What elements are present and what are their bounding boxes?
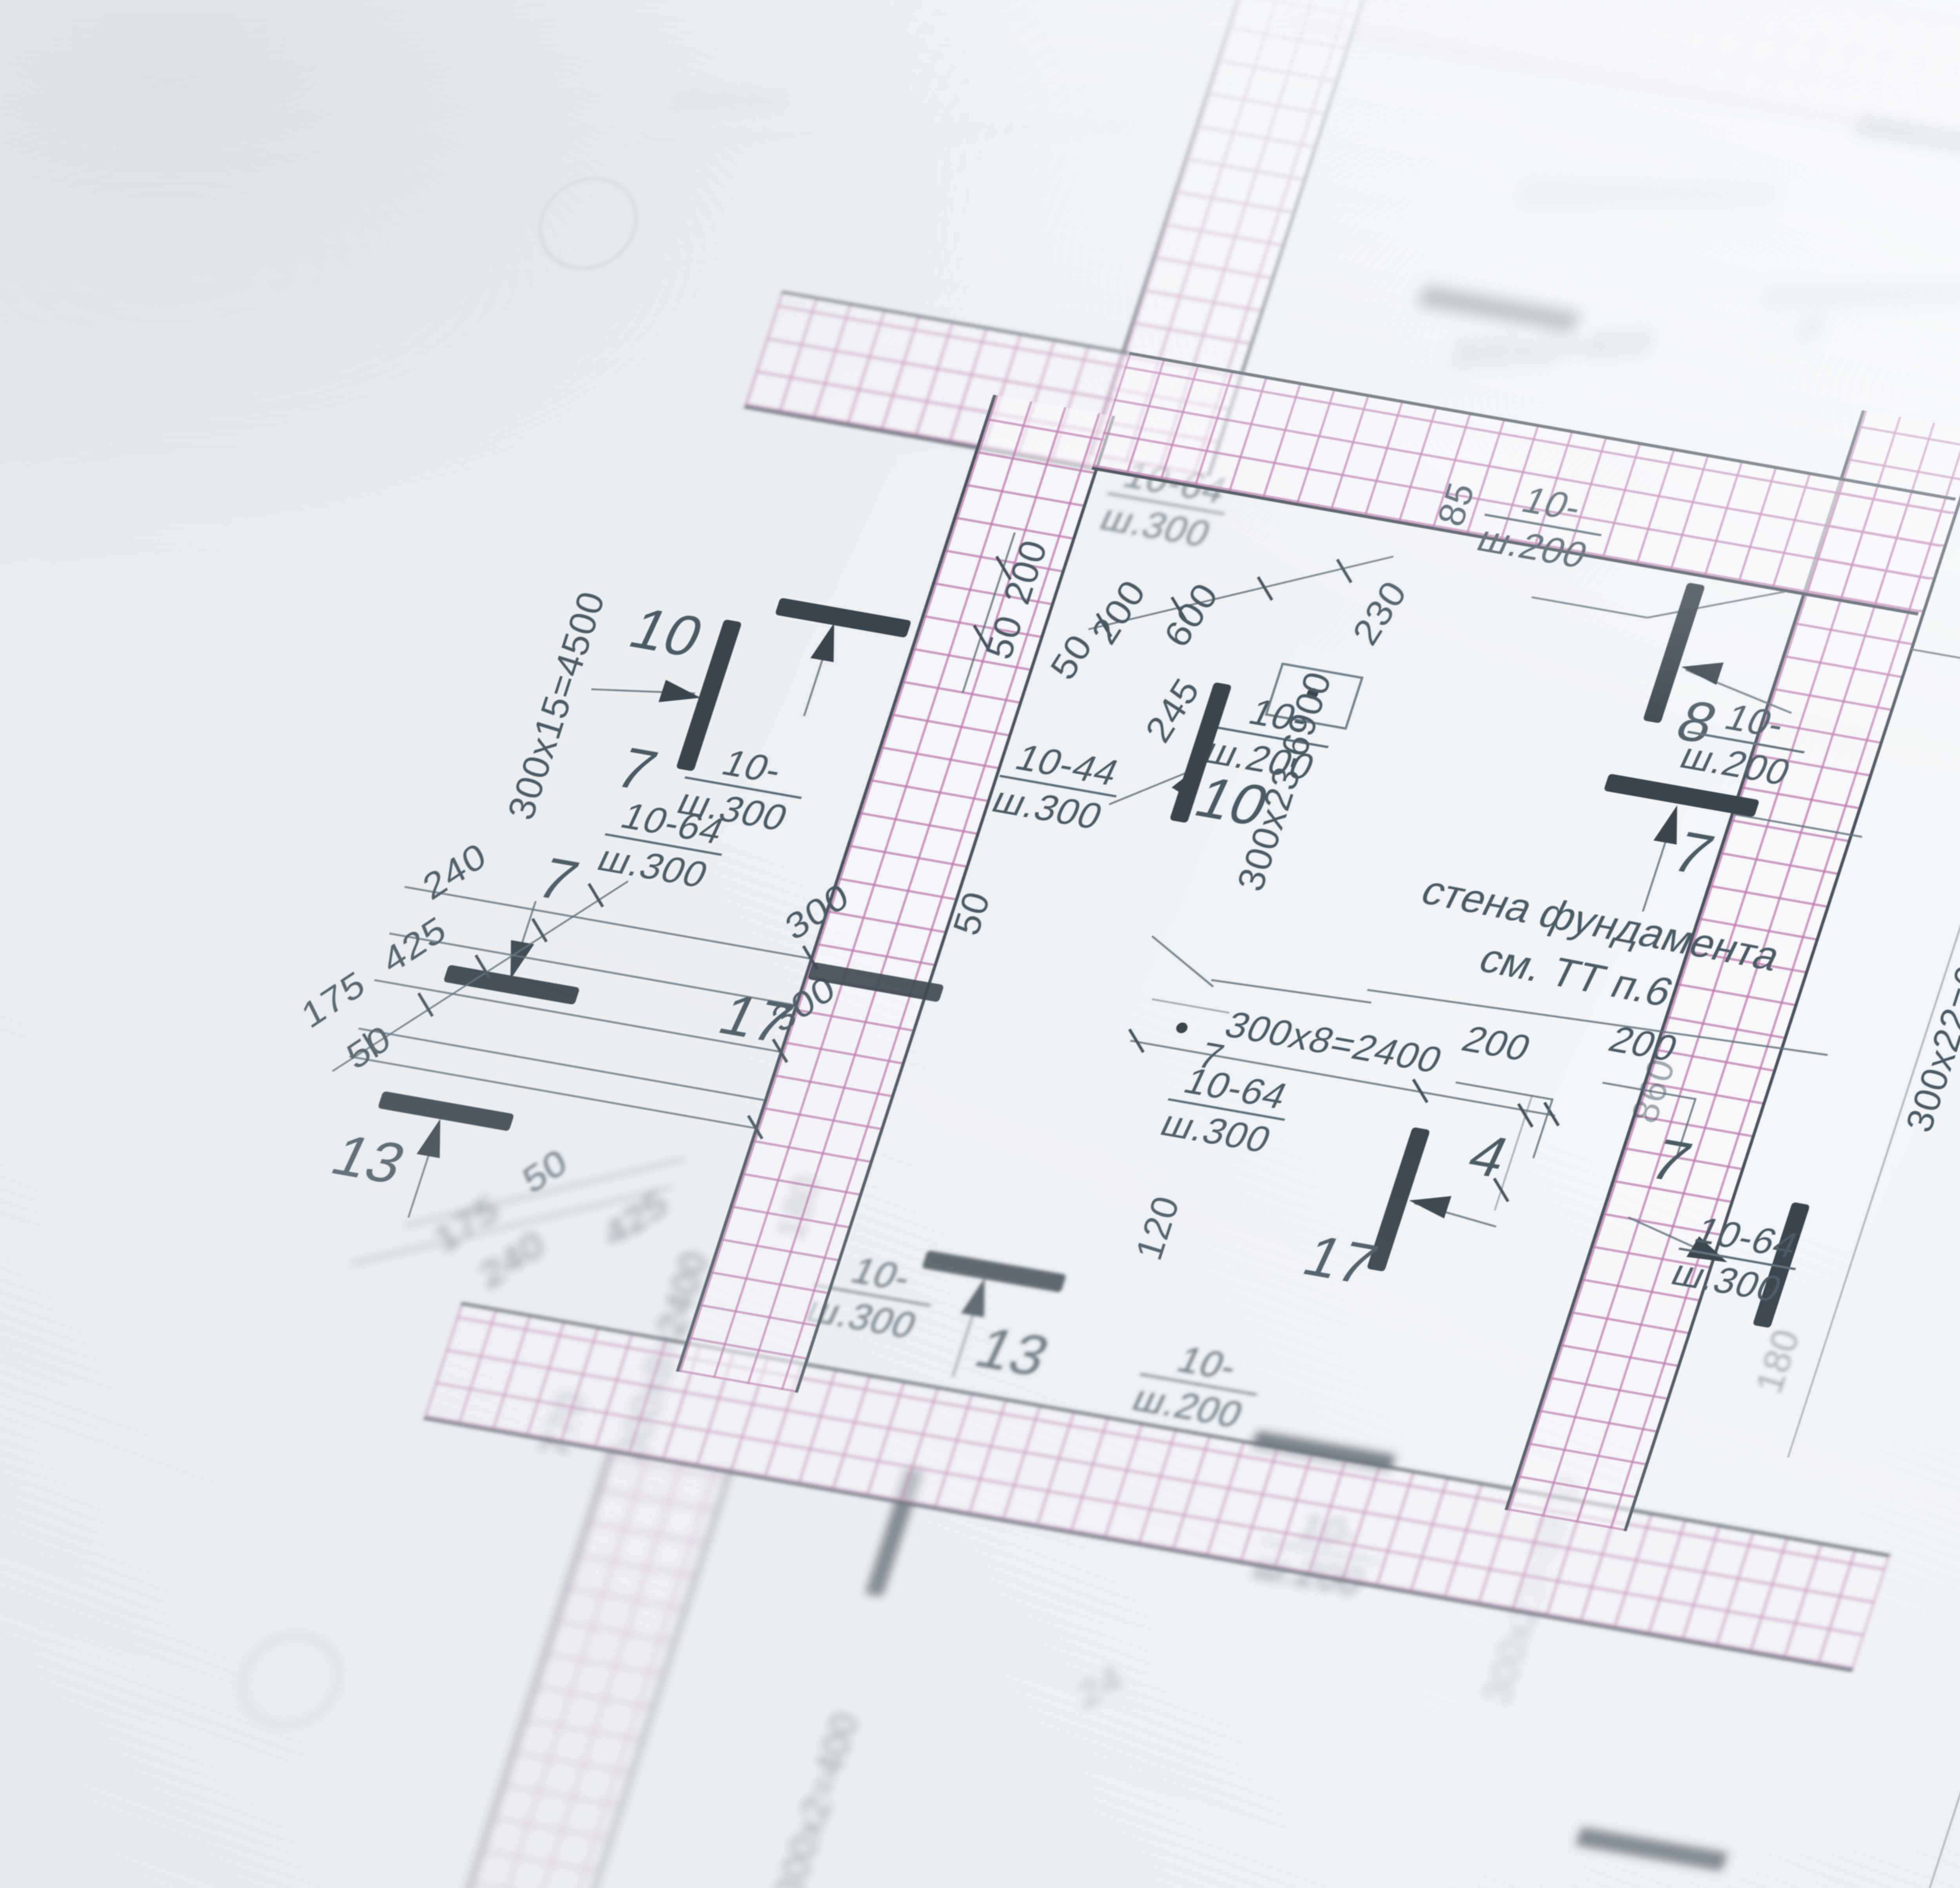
tick-mark — [1493, 1178, 1510, 1202]
spacing-pitch: ш.200 — [1466, 513, 1602, 575]
dimension-label: 300х22=6600 — [1897, 898, 1960, 1137]
tick-mark — [417, 992, 434, 1017]
dimension-label: 300х8=2400 — [1218, 1003, 1450, 1081]
rebar-number: 13 — [321, 1122, 417, 1197]
leader-line — [1648, 591, 1785, 618]
spacing-count: 10- — [1517, 481, 1589, 526]
tick-mark — [1336, 559, 1352, 583]
blueprint-sheet: 300х2=400 8 175 240 425 180 770 300х8=24… — [0, 0, 1960, 1888]
rebar-number: 7 — [527, 845, 589, 914]
leader-line — [1151, 935, 1214, 987]
arrowhead — [659, 680, 704, 709]
dimension-label: 240 — [417, 834, 492, 908]
wall-band-left-vertical — [676, 395, 1115, 1393]
dimension-line — [404, 886, 810, 959]
dimension-label: 50 — [341, 1016, 397, 1078]
dimension-label: 425 — [376, 907, 452, 982]
spacing-label: 10-64 ш.300 — [1150, 1060, 1303, 1159]
blueprint-photo: 300х2=400 8 175 240 425 180 770 300х8=24… — [0, 0, 1960, 1888]
dimension-label: 230 — [1344, 573, 1415, 653]
dimension-label: 50 — [1042, 627, 1101, 687]
dimension-label: 200 — [1083, 572, 1154, 652]
extension-line — [1532, 1098, 1553, 1158]
arrowhead — [1678, 656, 1724, 685]
leader-line — [1152, 998, 1230, 1014]
grid-line-horizontal — [1911, 648, 1960, 739]
in-focus-region: В стена фундамента см. ТТ п.6 300х15=450… — [0, 0, 1960, 1888]
rebar-number: 7 — [606, 735, 668, 804]
spacing-pitch: ш.200 — [1669, 731, 1804, 792]
dimension-label: 120 — [1127, 1190, 1188, 1265]
tick-mark — [588, 883, 604, 908]
dimension-label: 600 — [1156, 575, 1226, 655]
rebar-number: 17 — [1293, 1223, 1388, 1298]
rebar-number: 10 — [619, 595, 715, 670]
spacing-count: 10- — [1720, 698, 1792, 744]
arrowhead — [417, 1117, 452, 1158]
extension-line — [1455, 1081, 1553, 1100]
dimension-label: 300х15=4500 — [499, 586, 613, 825]
dot — [1175, 1022, 1189, 1034]
spacing-count: 10- — [717, 744, 789, 789]
dimension-line — [349, 1056, 755, 1129]
tick-mark — [1517, 1103, 1534, 1128]
dimension-label: 175 — [296, 962, 371, 1037]
leader-line — [1532, 596, 1648, 618]
spacing-label: 10-64 ш.300 — [587, 795, 740, 894]
arrowhead — [811, 621, 846, 662]
dimension-label: 200 — [1455, 1017, 1538, 1069]
leader-line — [1211, 979, 1371, 1003]
rebar-number: 4 — [1458, 1122, 1520, 1191]
arrowhead — [1405, 1189, 1451, 1218]
